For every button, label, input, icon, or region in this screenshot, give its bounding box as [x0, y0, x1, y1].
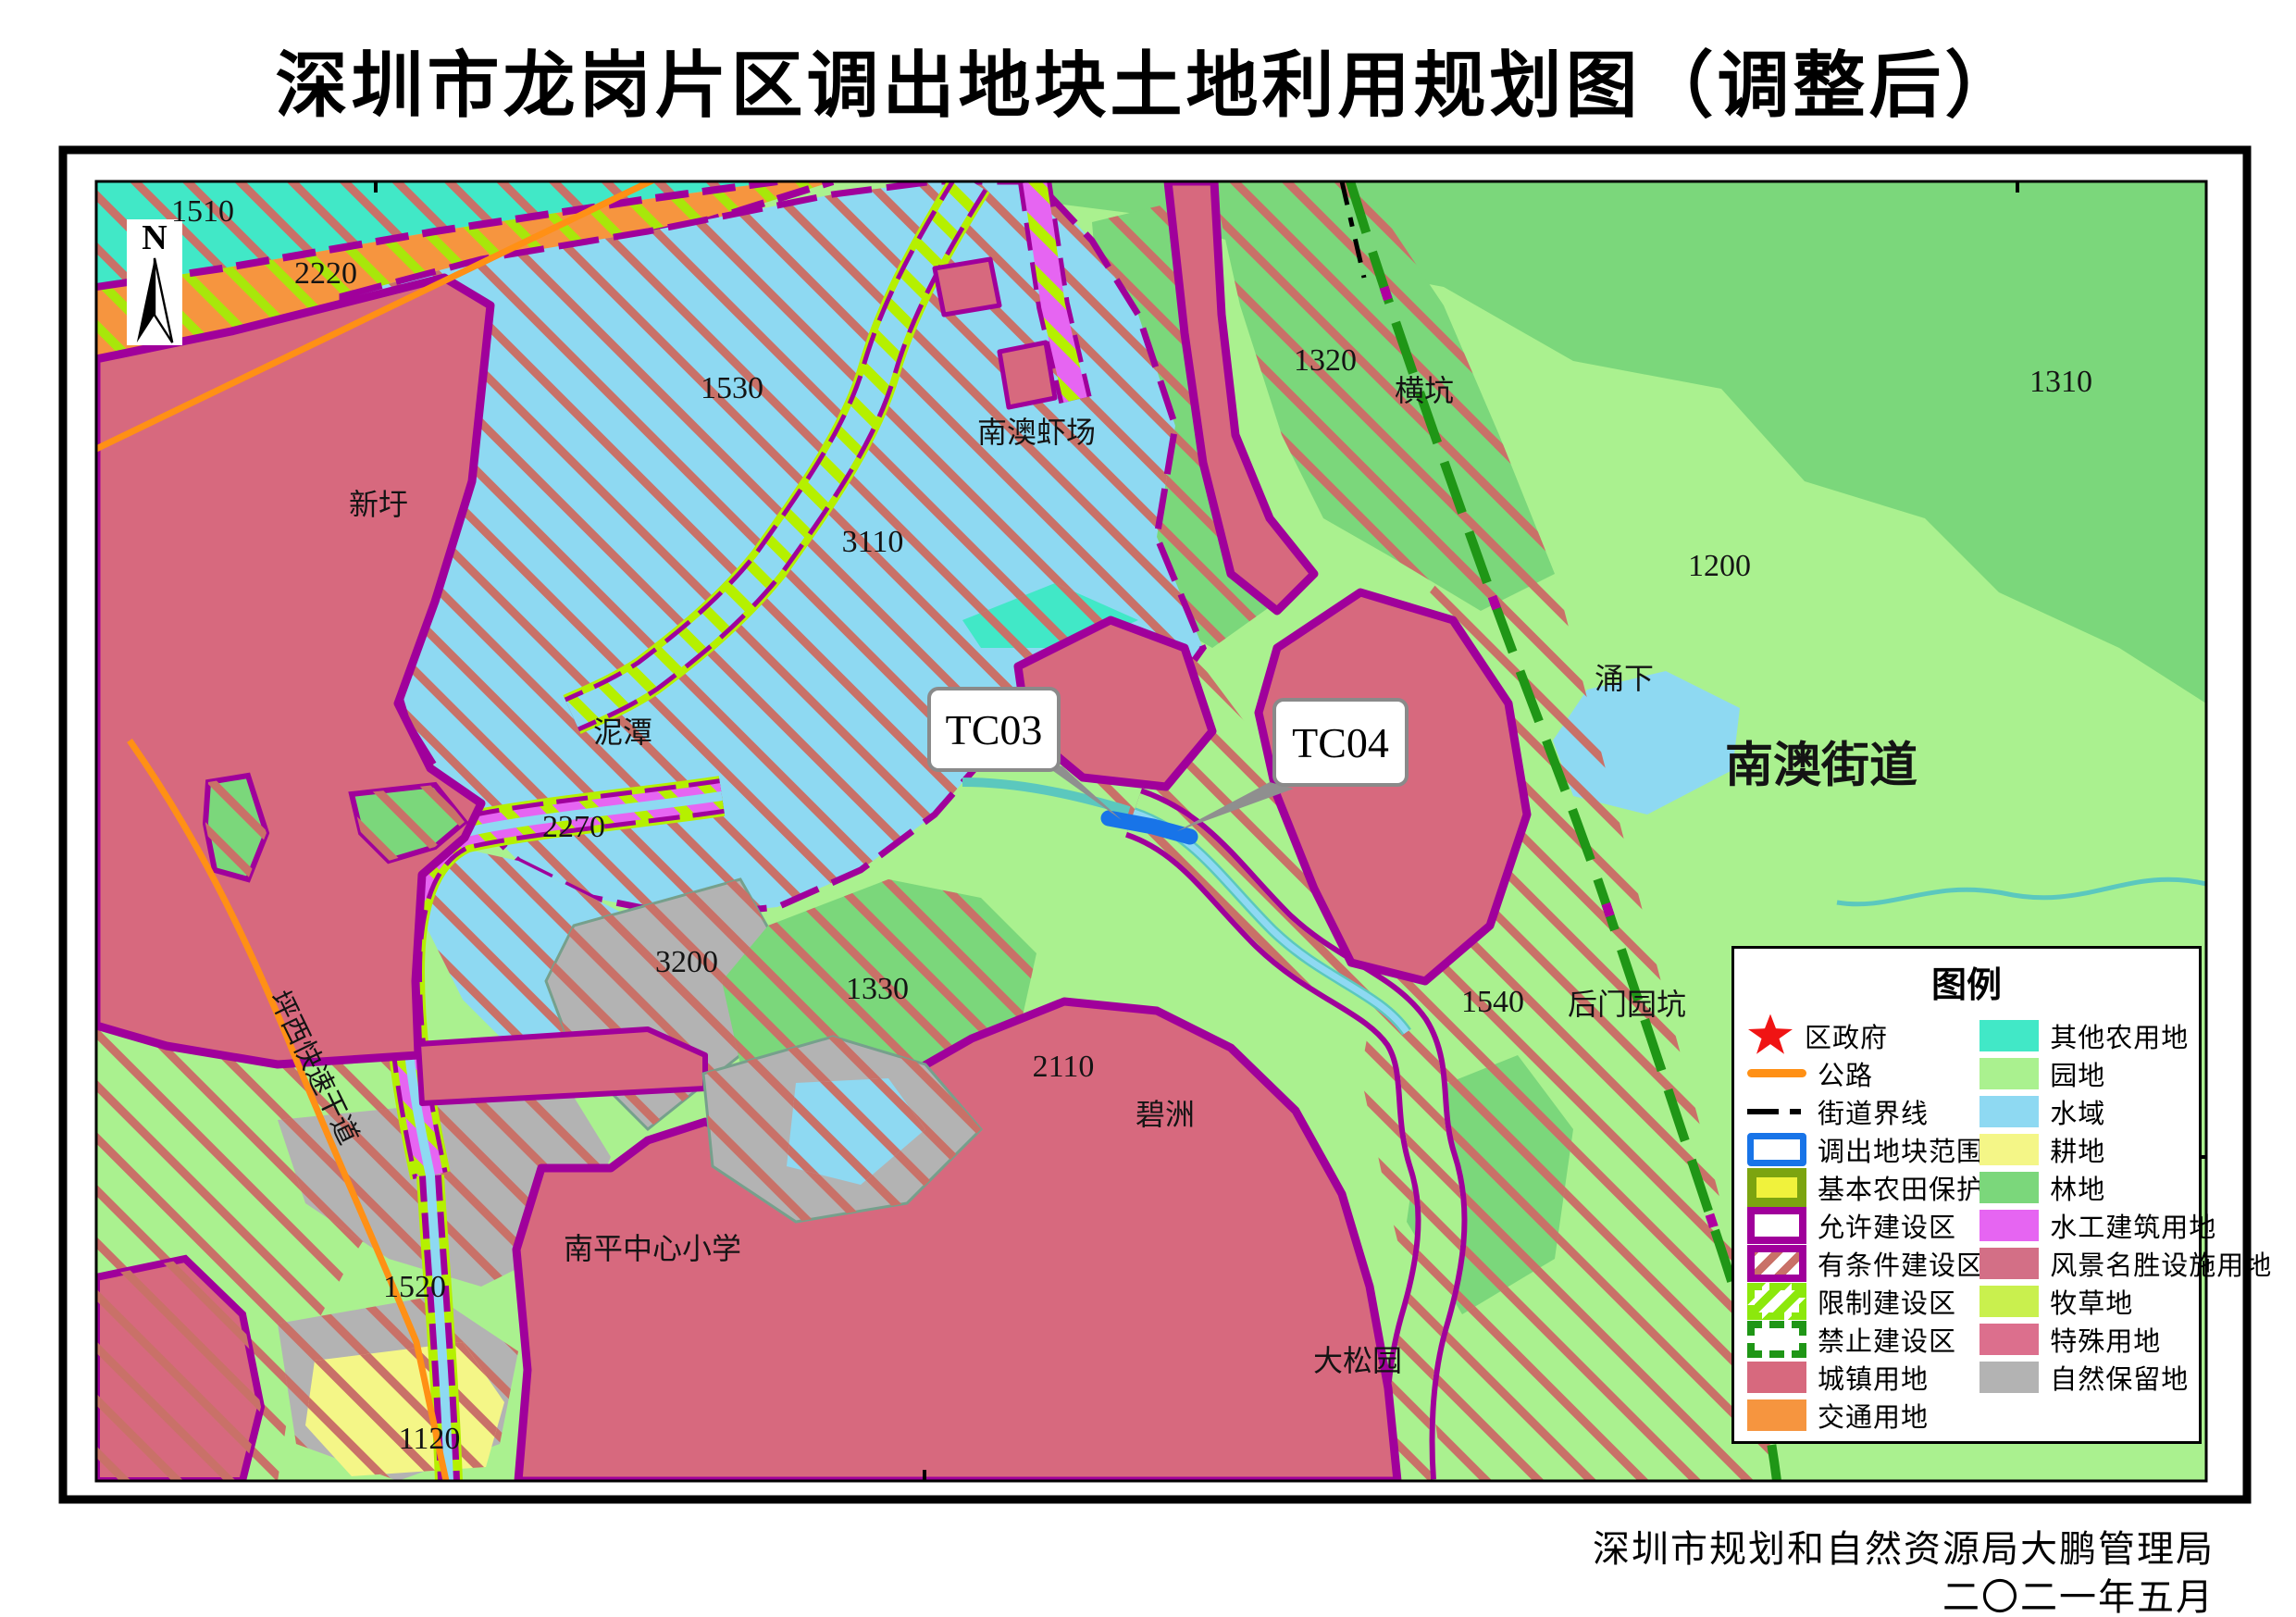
- legend-item-label: 公路: [1818, 1054, 1873, 1093]
- legend-item-label: 街道界线: [1818, 1092, 1929, 1131]
- legend-title: 图例: [1747, 956, 2186, 1007]
- legend-symbol: [1747, 1283, 1806, 1320]
- legend-symbol: [1747, 1207, 1806, 1244]
- legend-row: 园地: [1980, 1054, 2186, 1092]
- legend-row: 水工建筑用地: [1980, 1206, 2186, 1244]
- legend-row: 区政府: [1747, 1016, 1980, 1054]
- legend-swatch: [1980, 1020, 2039, 1051]
- legend-row: 牧草地: [1980, 1282, 2186, 1320]
- callout-tc03-label: TC03: [946, 705, 1043, 754]
- legend-symbol: [1747, 1399, 1806, 1431]
- legend-swatch: [1980, 1286, 2039, 1317]
- legend-row: 允许建设区: [1747, 1206, 1980, 1244]
- callout-tc04: TC04: [1272, 698, 1409, 787]
- legend-row: 基本农田保护区: [1747, 1168, 1980, 1206]
- legend-panel: 图例 区政府 公路 街道界线 调出地块范围: [1731, 946, 2202, 1444]
- legend-row: 公路: [1747, 1054, 1980, 1092]
- north-needle-icon: [130, 256, 179, 345]
- north-label: N: [142, 219, 167, 256]
- legend-item-label: 城镇用地: [1818, 1358, 1929, 1397]
- legend-swatch: [1980, 1172, 2039, 1203]
- legend-symbol: [1747, 1109, 1806, 1114]
- north-arrow: N: [127, 219, 182, 345]
- legend-symbol: [1747, 1133, 1806, 1166]
- region-urban-shrimp-a: [935, 259, 999, 315]
- legend-item-label: 水工建筑用地: [2050, 1206, 2216, 1245]
- callout-tc03: TC03: [927, 687, 1061, 772]
- legend-row: 交通用地: [1747, 1396, 1980, 1434]
- legend-item-label: 特殊用地: [2050, 1320, 2161, 1359]
- legend-item-label: 自然保留地: [2050, 1358, 2189, 1397]
- callout-tc04-label: TC04: [1292, 718, 1389, 767]
- legend-symbol: [1747, 1245, 1806, 1282]
- legend-row: 城镇用地: [1747, 1358, 1980, 1396]
- legend-swatch: [1980, 1324, 2039, 1355]
- legend-row: 特殊用地: [1980, 1320, 2186, 1358]
- attribution-agency: 深圳市规划和自然资源局大鹏管理局: [1593, 1525, 2215, 1573]
- legend-row: 调出地块范围: [1747, 1130, 1980, 1168]
- legend-row: 有条件建设区: [1747, 1244, 1980, 1282]
- legend-item-label: 有条件建设区: [1818, 1244, 1984, 1283]
- legend-row: 耕地: [1980, 1130, 2186, 1168]
- attribution-date: 二〇二一年五月: [1593, 1573, 2215, 1617]
- legend-swatch: [1980, 1210, 2039, 1241]
- legend-item-label: 区政府: [1805, 1016, 1888, 1055]
- legend-swatch: [1980, 1134, 2039, 1165]
- legend-item-label: 禁止建设区: [1818, 1320, 1956, 1359]
- legend-row: 禁止建设区: [1747, 1320, 1980, 1358]
- legend-item-label: 牧草地: [2050, 1282, 2133, 1321]
- legend-item-label: 调出地块范围: [1818, 1130, 1984, 1169]
- legend-row: 林地: [1980, 1168, 2186, 1206]
- attribution: 深圳市规划和自然资源局大鹏管理局 二〇二一年五月: [1593, 1525, 2215, 1617]
- legend-row: 水域: [1980, 1092, 2186, 1130]
- legend-column-left: 区政府 公路 街道界线 调出地块范围 基本农田保护区: [1747, 1016, 1980, 1434]
- legend-symbol: [1747, 1168, 1806, 1207]
- legend-item-label: 水域: [2050, 1092, 2105, 1131]
- region-farmland-1120: [305, 1342, 504, 1476]
- legend-row: 自然保留地: [1980, 1358, 2186, 1396]
- legend-item-label: 允许建设区: [1818, 1206, 1956, 1245]
- legend-column-right: 其他农用地 园地 水域 耕地 林地 水工: [1980, 1016, 2186, 1434]
- legend-swatch: [1980, 1248, 2039, 1279]
- legend-swatch: [1980, 1058, 2039, 1089]
- legend-item-label: 林地: [2050, 1168, 2105, 1207]
- legend-row: 风景名胜设施用地: [1980, 1244, 2186, 1282]
- legend-symbol: [1747, 1362, 1806, 1393]
- legend-symbol: [1747, 1321, 1806, 1358]
- legend-swatch: [1980, 1362, 2039, 1393]
- legend-item-label: 园地: [2050, 1054, 2105, 1093]
- legend-row: 限制建设区: [1747, 1282, 1980, 1320]
- legend-swatch: [1980, 1096, 2039, 1127]
- legend-row: 街道界线: [1747, 1092, 1980, 1130]
- planning-map-page: 深圳市龙岗片区调出地块土地利用规划图（调整后） 151022201530南澳虾场…: [0, 0, 2296, 1617]
- legend-symbol: [1747, 1014, 1793, 1057]
- legend-symbol: [1747, 1069, 1806, 1077]
- region-urban-road-band: [418, 1029, 705, 1103]
- legend-item-label: 其他农用地: [2050, 1016, 2189, 1055]
- legend-item-label: 风景名胜设施用地: [2050, 1244, 2272, 1283]
- region-urban-shrimp-b: [999, 342, 1055, 407]
- legend-item-label: 耕地: [2050, 1130, 2105, 1169]
- legend-item-label: 交通用地: [1818, 1396, 1929, 1435]
- legend-row: 其他农用地: [1980, 1016, 2186, 1054]
- legend-item-label: 限制建设区: [1818, 1282, 1956, 1321]
